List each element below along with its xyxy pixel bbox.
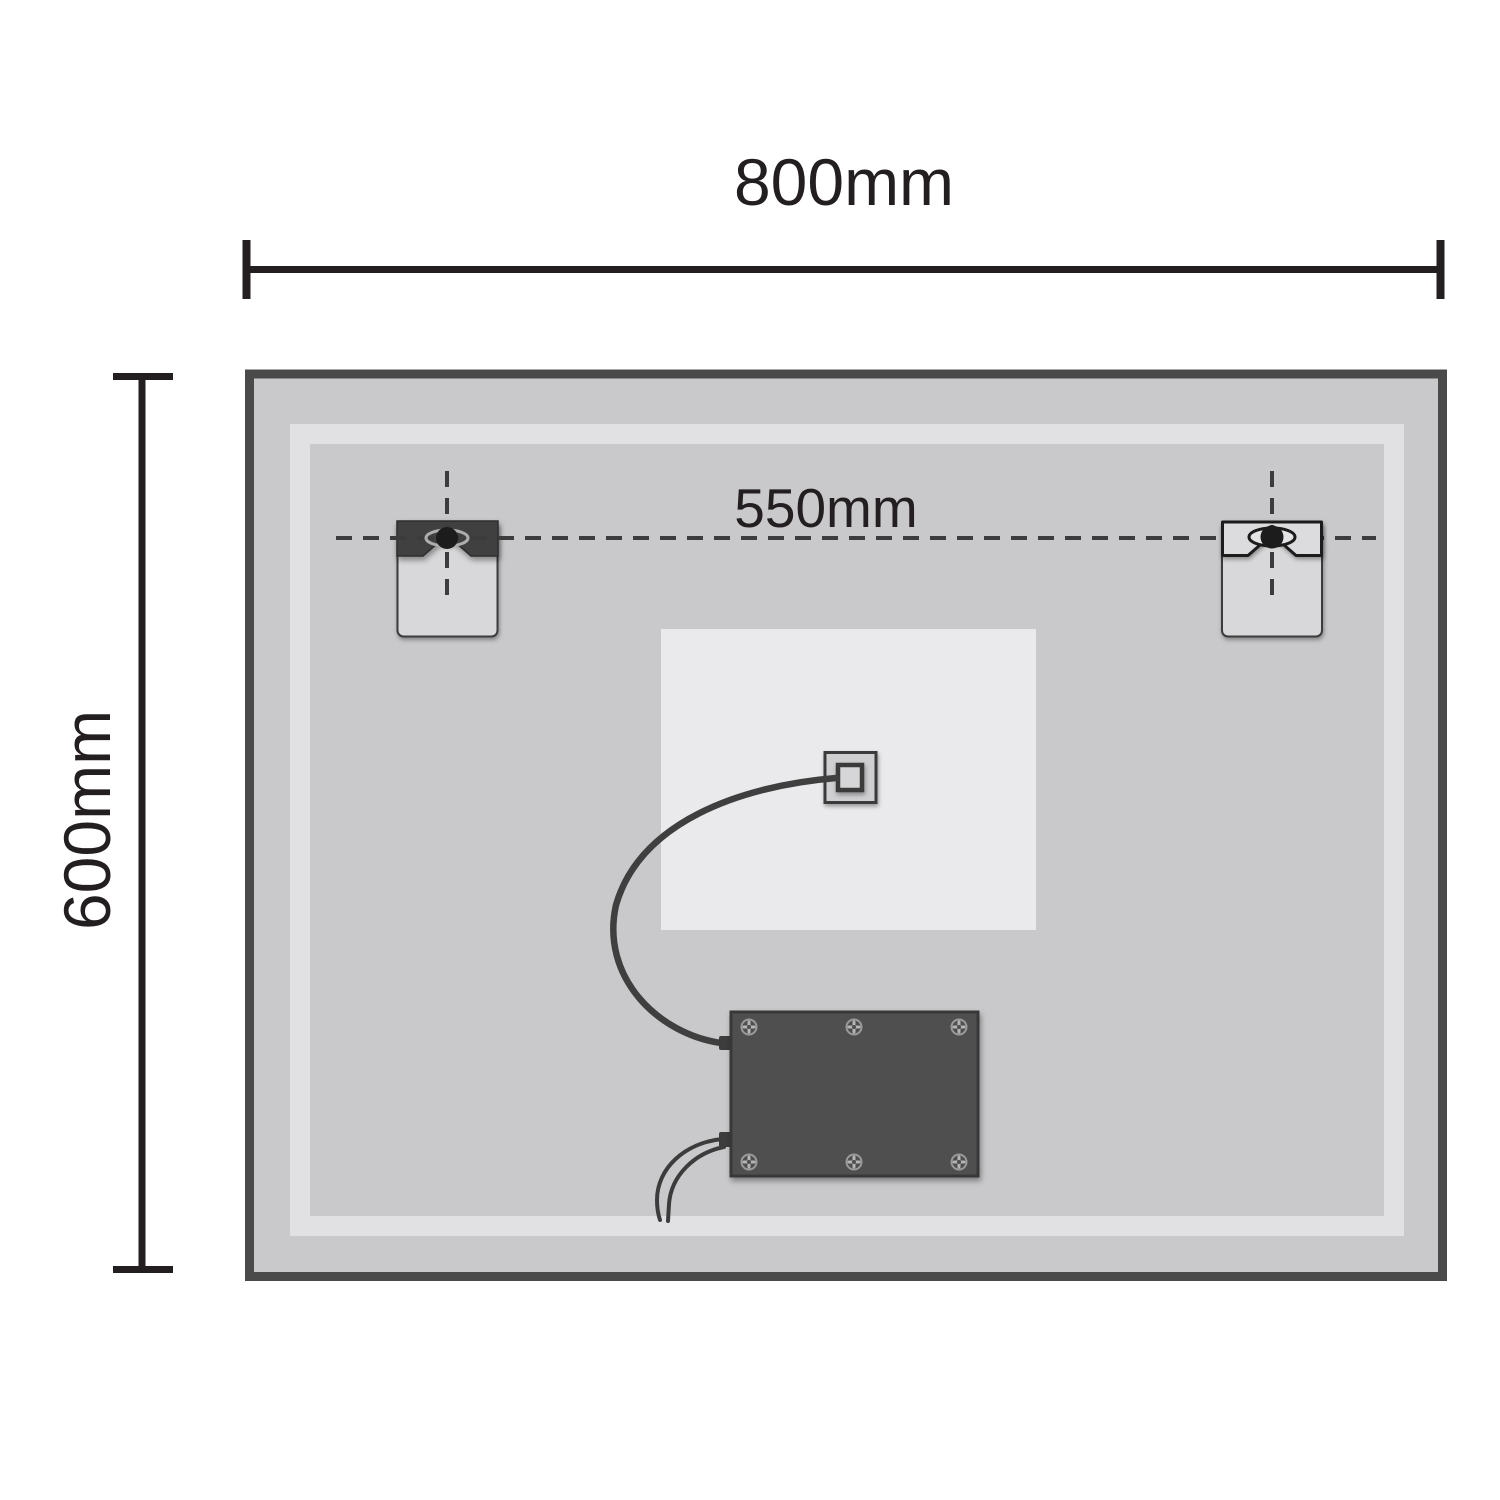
led-driver-box: [719, 1012, 978, 1176]
screw: [952, 1020, 967, 1035]
screw: [847, 1020, 862, 1035]
bracket-spacing-label: 550mm: [734, 477, 917, 539]
driver-box-body: [731, 1012, 978, 1176]
screw: [742, 1020, 757, 1035]
screw: [847, 1155, 862, 1170]
mirror-dimension-diagram: 800mm 600mm 550mm: [0, 0, 1500, 1500]
width-dimension: 800mm: [243, 145, 1444, 299]
screw: [742, 1155, 757, 1170]
diagram-canvas: 800mm 600mm 550mm: [0, 0, 1500, 1500]
screw: [952, 1155, 967, 1170]
sensor-button-square: [838, 765, 862, 790]
height-dimension-label: 600mm: [50, 710, 124, 930]
height-dimension: 600mm: [50, 376, 173, 1270]
keyhole-circle-right: [1261, 526, 1284, 549]
keyhole-circle-left: [436, 527, 458, 549]
width-dimension-label: 800mm: [734, 145, 954, 219]
